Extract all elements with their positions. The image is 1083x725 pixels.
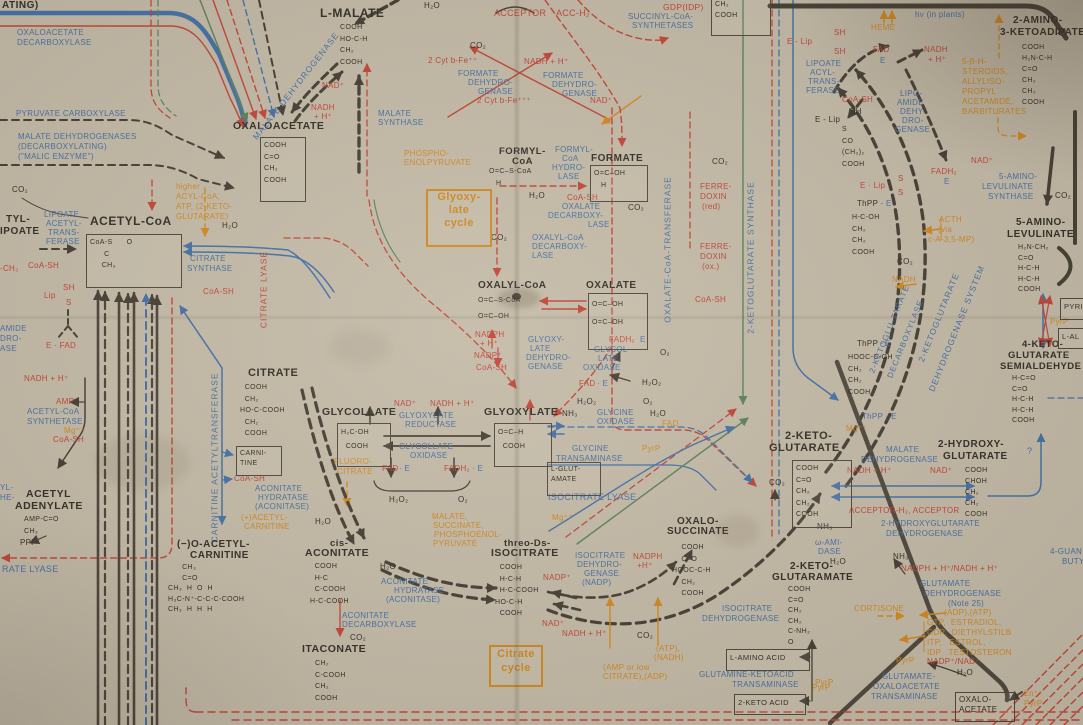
- enzyme-label: HE-: [0, 494, 15, 502]
- cofactor-label: + H⁺: [928, 56, 946, 64]
- chart-label: NH₃: [893, 553, 909, 561]
- enzyme-label: OXALATE-CoA-TRANSFERASE: [664, 171, 673, 327]
- enzyme-label: ASE: [0, 345, 17, 353]
- cofactor-label: CoA-SH: [203, 288, 234, 296]
- molecule-structure: COOH H-C-H H-C-COOH HO-C-H COOH: [495, 562, 565, 620]
- metabolite-title: ACETYL-CoA: [90, 215, 172, 228]
- molecule-box: COOH C=O CH₂ CH₂ COOH: [792, 460, 852, 528]
- metabolite-title: GLUTARATE: [943, 452, 1008, 463]
- cycle-label-box: Glyoxy- late cycle: [426, 189, 492, 247]
- enzyme-label: SYNTHASE: [187, 265, 233, 273]
- cofactor-label: S: [66, 299, 72, 307]
- regulator-label: ALLYLISO-: [962, 78, 1005, 86]
- cofactor-label: NADH + H⁺: [524, 58, 569, 66]
- enzyme-label: REDUCTASE: [405, 421, 456, 429]
- enzyme-label: DEHYDROGENASE: [924, 590, 1001, 598]
- regulator-label: c-A-3,5-MP): [928, 236, 974, 244]
- metabolite-title: ATING): [2, 1, 39, 12]
- chart-label: ThPP ·: [857, 340, 884, 348]
- regulator-label: PyrP: [896, 657, 915, 665]
- enzyme-label: hν (in plants): [915, 11, 965, 19]
- regulator-label: PyrP: [642, 445, 661, 453]
- enzyme-label: DRO-: [0, 335, 22, 343]
- regulator-label: CARNITINE: [244, 523, 290, 531]
- cofactor-label: E · FAD: [46, 342, 76, 350]
- enzyme-label: OXIDASE: [410, 452, 448, 460]
- regulator-label: ENOLPYRUVATE: [404, 159, 471, 167]
- enzyme-label: GLYCINE: [572, 445, 609, 453]
- chart-label: H₂O₂: [577, 398, 596, 406]
- enzyme-label: PYRUVATE CARBOXYLASE: [16, 110, 126, 118]
- chart-label: ThPP ·: [857, 200, 884, 208]
- cofactor-label: NADH + H⁺: [430, 400, 475, 408]
- enzyme-label: SYNTHASE: [378, 119, 424, 127]
- enzyme-label: 2-KETOGLUTARATE SYNTHASE: [747, 172, 756, 342]
- enzyme-label: YL-: [0, 484, 13, 492]
- cofactor-label: SH: [834, 29, 846, 37]
- cofactor-label: + H⁺: [480, 340, 498, 348]
- molecule-structure: COOH C=O CH₂ CH₂ C-NH₂ O: [788, 585, 844, 653]
- enzyme-label: LASE: [588, 221, 610, 229]
- enzyme-label: E: [886, 200, 892, 208]
- metabolite-title: 2-KETO-: [790, 562, 833, 573]
- molecule-structure: COOH HO-C-H CH₂ COOH: [340, 22, 395, 74]
- cofactor-label: Lip: [44, 292, 56, 300]
- regulator-label: PYRUVATE: [433, 540, 477, 548]
- cofactor-label: E - Lip: [787, 38, 812, 46]
- cofactor-label: DOXIN: [700, 253, 727, 261]
- enzyme-label: GENASE: [895, 126, 930, 134]
- molecule-structure: AMP-C=O CH₃: [24, 514, 84, 540]
- cofactor-label: ACCEPTOR: [494, 9, 546, 18]
- enzyme-label: ACETYL-CoA: [27, 408, 79, 416]
- chart-label: CO₂: [350, 634, 366, 642]
- enzyme-label: DEHYDROGENASE: [861, 456, 938, 464]
- enzyme-label: OXIDASE: [583, 364, 621, 372]
- molecule-structure: CH₂ C-COOH CH₂ COOH: [315, 658, 375, 706]
- enzyme-label: (ACONITASE): [255, 503, 309, 511]
- chart-label: CO₂: [1055, 192, 1071, 200]
- chart-label: O₂: [660, 349, 670, 357]
- regulator-label: ITP, ESTROL,: [927, 639, 986, 647]
- molecule-box: CARNI- TINE: [236, 446, 282, 476]
- cofactor-label: E · Lip: [860, 182, 885, 190]
- regulator-label: Mg⁺⁺: [552, 514, 573, 522]
- regulator-label: PyrP: [1024, 700, 1043, 708]
- cofactor-label: NAD⁺: [930, 467, 952, 475]
- regulator-label: FAD: [662, 420, 678, 428]
- cofactor-label: NAD⁺: [542, 620, 564, 628]
- cofactor-label: NADP⁺: [474, 352, 502, 360]
- cofactor-label: CITRATE LYASE: [260, 249, 269, 329]
- molecule-structure: S CO (CH₂)₂ COOH: [842, 124, 890, 170]
- regulator-label: Zn⁺⁺: [1024, 690, 1043, 698]
- cofactor-label: (ox.): [702, 263, 720, 271]
- molecule-structure: COOH C=O HOOC-C-H CH₂ COOH: [672, 542, 738, 600]
- regulator-label: ATP, (2-KETO-: [176, 203, 232, 211]
- cofactor-label: NADH: [924, 46, 948, 54]
- chart-label: SH: [850, 108, 862, 116]
- enzyme-label: OXIDASE: [597, 418, 635, 426]
- metabolite-title: ACONITATE: [305, 548, 369, 559]
- metabolite-title: L-MALATE: [320, 7, 384, 20]
- cofactor-label: CoA-SH: [695, 296, 726, 304]
- enzyme-label: ("MALIC ENZYME"): [18, 153, 94, 161]
- enzyme-label: TRANSAMINASE: [732, 681, 799, 689]
- enzyme-label: GLUTAMINE-KETOACID: [699, 671, 794, 679]
- enzyme-label: FERASE: [806, 87, 840, 95]
- enzyme-label: SYNTHETASES: [632, 22, 693, 30]
- molecule-box: OXALO- ACETATE: [955, 692, 1015, 722]
- chart-label: H₂O: [957, 669, 973, 677]
- chart-label: H₂O: [315, 518, 331, 526]
- chart-label: O₂: [643, 398, 653, 406]
- metabolite-title: OXALOACETATE: [233, 121, 324, 132]
- molecule-structure: COOH CH₂ HO-C-COOH CH₂ COOH: [240, 382, 310, 442]
- metabolite-title: OXALYL-CoA: [478, 281, 547, 292]
- cofactor-label: CoA-SH: [53, 436, 84, 444]
- cofactor-label: (red): [702, 203, 720, 211]
- cofactor-label: NAD⁺: [590, 97, 612, 105]
- regulator-label: GTP, ESTRADIOL,: [927, 619, 1001, 627]
- cofactor-label: CoA-SH: [28, 262, 59, 270]
- cofactor-label: NAD⁺: [394, 400, 416, 408]
- regulator-label: PROPYL: [962, 88, 996, 96]
- enzyme-label: DASE: [818, 548, 841, 556]
- regulator-label: ACTH: [939, 216, 962, 224]
- regulator-label: CITRATE: [337, 468, 373, 476]
- cofactor-label: FAD: [873, 46, 889, 54]
- cofactor-label: AMP: [56, 398, 74, 406]
- chart-label: H₂O₂: [642, 379, 661, 387]
- metabolite-title: 2-HYDROXY-: [938, 440, 1004, 451]
- cofactor-label: NADPH + H⁺/NADH + H⁺: [901, 565, 998, 573]
- metabolite-title: ADENYLATE: [15, 501, 83, 512]
- chart-label: CO₂: [712, 158, 728, 166]
- molecule-structure: O=C–S-CoA H: [489, 166, 547, 196]
- chart-label: H₂O: [650, 410, 666, 418]
- enzyme-label: DECARBOXYLASE: [342, 621, 417, 629]
- metabolite-title: (−)O-ACETYL-: [177, 540, 250, 551]
- metabolite-title: CITRATE: [248, 368, 298, 380]
- metabolite-title: LEVULINATE: [1007, 230, 1074, 241]
- enzyme-label: ISOCITRATE: [722, 605, 772, 613]
- cofactor-label: NADH + H⁺: [24, 375, 69, 383]
- cofactor-label: NAD⁺: [971, 157, 993, 165]
- metabolite-title: OXALATE: [586, 281, 637, 292]
- chart-label: H₂O: [424, 2, 440, 10]
- metabolite-title: 2-KETO-: [785, 431, 832, 443]
- enzyme-label: SYNTHASE: [988, 193, 1034, 201]
- chart-label: H₂O: [222, 222, 238, 230]
- enzyme-label: MALATE: [886, 446, 919, 454]
- enzyme-label: MALATE DEHYDROGENASES: [18, 133, 137, 141]
- metabolite-title: ACETYL: [26, 489, 71, 500]
- chart-label: NH₃: [562, 410, 578, 418]
- enzyme-label: LEVULINATE: [982, 183, 1033, 191]
- regulator-label: CORTISONE: [854, 605, 904, 613]
- cofactor-label: ACC-H₂: [556, 9, 590, 18]
- molecule-structure: COOH H₂N-C-H C=O CH₂ CH₂ COOH: [1022, 42, 1082, 114]
- molecule-structure: H₂N-CH₂ C=O H-C-H H-C-H COOH: [1018, 243, 1078, 303]
- cofactor-label: FERRE-: [700, 243, 732, 251]
- enzyme-label: CARNITINE ACETYLTRANSFERASE: [211, 362, 220, 552]
- enzyme-label: OXALOACETATE: [873, 683, 940, 691]
- molecule-box: H₂C-OH COOH: [337, 423, 391, 467]
- cofactor-label: S: [898, 175, 904, 183]
- cofactor-label: 2 Cyt b-Fe⁺⁺: [428, 57, 477, 65]
- cofactor-label: NAD⁺: [322, 82, 344, 90]
- cofactor-label: NADH + H⁺: [562, 630, 607, 638]
- cofactor-label: FERRE-: [700, 183, 732, 191]
- chart-label: CO₂: [12, 186, 28, 194]
- regulator-label: 5-β-H-: [962, 58, 987, 66]
- metabolite-title: ISOCITRATE: [491, 548, 559, 559]
- cofactor-label: NADH + H⁺: [847, 467, 892, 475]
- enzyme-label: (NADP): [582, 579, 611, 587]
- regulator-label: (via: [938, 226, 952, 234]
- cofactor-label: GDP(IDP): [663, 3, 704, 12]
- enzyme-label: E: [944, 178, 950, 186]
- molecule-structure: H-C-OH CH₂ CH₂ COOH: [852, 212, 902, 260]
- regulator-label: higher: [176, 183, 200, 191]
- enzyme-label: BUTY: [1062, 558, 1083, 566]
- enzyme-label: E: [880, 57, 886, 65]
- regulator-label: (NADH): [654, 654, 684, 662]
- cofactor-label: S: [898, 189, 904, 197]
- metabolite-title: GLYOXYLATE: [484, 407, 558, 418]
- chart-label: O₂: [458, 496, 468, 504]
- regulator-label: GLUTARATE): [176, 213, 228, 221]
- molecule-box: L-GLUT- AMATE: [547, 462, 601, 496]
- cofactor-label: 2 Cyt b-Fe⁺⁺⁺: [477, 97, 531, 105]
- molecule-structure: COOH CHOH CH₂ CH₂ COOH: [965, 465, 1015, 523]
- molecule-box: L-AL: [1058, 328, 1083, 349]
- enzyme-label: RATE LYASE: [2, 565, 59, 574]
- enzyme-label: FERASE: [46, 238, 80, 246]
- enzyme-label: 4-GUAN: [1050, 548, 1082, 556]
- cofactor-label: DOXIN: [700, 193, 727, 201]
- molecule-structure: COOH H-C C-COOH H-C-COOH: [310, 561, 380, 609]
- enzyme-label: GLUTAMATE-: [882, 673, 935, 681]
- enzyme-label: · E: [399, 465, 410, 473]
- molecule-box: O=C–OH H: [590, 165, 648, 202]
- molecule-box: CoA-S O C CH₃: [86, 234, 182, 288]
- enzyme-label: GENASE: [528, 363, 563, 371]
- molecule-box: O=C–H COOH: [494, 423, 552, 467]
- enzyme-label: TRANSAMINASE: [871, 693, 938, 701]
- molecule-structure: HOOC-C-OH CH₂ CH₂ COOH: [848, 352, 910, 400]
- metabolite-title: SUCCINATE: [667, 527, 729, 538]
- molecule-box: CH₂ CH₂ COOH: [711, 0, 771, 36]
- cofactor-label: +H⁺: [637, 562, 653, 570]
- enzyme-label: DEHYDROGENASE: [702, 615, 779, 623]
- metabolite-title: GLUTARATE: [1008, 351, 1070, 361]
- chart-label: PPi: [20, 539, 33, 547]
- enzyme-label: CITRATE: [190, 255, 226, 263]
- molecule-structure: CH₃ C=O CH₃ H O H H₃C-N⁺-C-C-C-COOH CH₃ …: [168, 563, 292, 619]
- chart-label: CO₂: [628, 204, 644, 212]
- cofactor-label: FAD: [579, 380, 595, 388]
- metabolite-title: TYL-: [6, 215, 30, 226]
- enzyme-label: DECARBOXYLASE: [17, 39, 92, 47]
- enzyme-label: · E: [472, 465, 483, 473]
- cofactor-label: CoA-SH: [234, 475, 265, 483]
- metabolite-title: FORMATE: [591, 154, 643, 165]
- cofactor-label: -CH₃: [0, 265, 19, 273]
- enzyme-label: E: [885, 340, 891, 348]
- cycle-label-box: Citrate cycle: [489, 645, 543, 687]
- regulator-label: BARBITURATES: [962, 108, 1026, 116]
- cofactor-label: + H⁺: [314, 113, 332, 121]
- metabolite-title: 2-AMINO-: [1013, 16, 1063, 27]
- cofactor-label: SH: [63, 284, 75, 292]
- regulator-label: (ADP),(ATP): [944, 609, 992, 617]
- molecule-structure: H-C=O C=O H-C-H H-C-H COOH: [1012, 374, 1072, 432]
- regulator-label: ACYL-CoA,: [176, 193, 220, 201]
- chart-label: CO₂: [491, 234, 507, 242]
- enzyme-label: LASE: [558, 173, 580, 181]
- enzyme-label: AMIDE: [0, 325, 27, 333]
- enzyme-label: ThPP · E: [862, 413, 897, 421]
- enzyme-label: 5-AMINO-: [999, 173, 1037, 181]
- chart-label: E - Lip: [815, 116, 840, 124]
- molecule-structure: O=C–S-CoA O=C–OH: [478, 293, 540, 337]
- cofactor-label: SH: [834, 48, 846, 56]
- enzyme-label: DEHYDROGENASE: [886, 530, 963, 538]
- cofactor-label: NADP⁺/NAD⁺: [927, 658, 980, 666]
- chart-label: CO₂: [769, 479, 785, 487]
- enzyme-label: ?: [1027, 447, 1032, 456]
- enzyme-label: OXALOACETATE: [17, 29, 84, 37]
- regulator-label: Mg⁺⁺: [846, 425, 867, 433]
- enzyme-label: GLUTAMATE: [920, 580, 970, 588]
- chart-label: H₂O₂: [389, 496, 408, 504]
- metabolite-title: CARNITINE: [190, 551, 249, 562]
- cofactor-label: FADH₂: [931, 168, 957, 176]
- regulator-label: GDP, DIETHYLSTILB: [927, 629, 1011, 637]
- metabolite-title: 3-KETOADIPATE: [1000, 28, 1083, 39]
- regulator-label: ACETAMIDE,: [962, 98, 1013, 106]
- cofactor-label: CoA-SH: [476, 364, 507, 372]
- metabolite-title: 5-AMINO-: [1016, 218, 1066, 229]
- enzyme-label: (ACONITASE): [386, 596, 440, 604]
- metabolite-title: SEMIALDEHYDE: [1000, 362, 1081, 372]
- metabolite-title: GLUTARAMATE: [772, 573, 853, 584]
- cofactor-label: FADH₂: [444, 465, 470, 473]
- molecule-box: 2-KETO ACID: [734, 694, 806, 715]
- metabolite-title: GLUTARATE: [769, 443, 840, 455]
- cofactor-label: ACCEPTOR-H₂, ACCEPTOR: [849, 507, 959, 515]
- enzyme-label: · E: [597, 380, 608, 388]
- regulator-label: PyrP: [812, 684, 831, 692]
- pathway-chart: ATING)OXALOACETATEDECARBOXYLASEPYRUVATE …: [0, 0, 1083, 725]
- metabolite-title: IPOATE: [0, 227, 39, 238]
- metabolite-title: ITACONATE: [302, 644, 366, 655]
- molecule-box: L-AMINO ACID: [726, 649, 810, 671]
- chart-label: CO₂: [637, 632, 653, 640]
- chart-label: H₂O: [380, 563, 396, 571]
- enzyme-label: LASE: [532, 252, 554, 260]
- metabolite-title: GLYCOLLATE: [322, 407, 396, 418]
- enzyme-label: (DECARBOXYLATING): [18, 143, 107, 151]
- regulator-label: CITRATE),(ADP): [603, 673, 668, 681]
- molecule-box: O=C–OH O=C–OH: [588, 293, 648, 350]
- cofactor-label: CoA-SH: [842, 96, 873, 104]
- chart-label: CO₂: [470, 42, 486, 50]
- molecule-box: COOH C=O CH₂ COOH: [260, 137, 306, 202]
- regulator-label: STEROIDS,: [962, 68, 1008, 76]
- regulator-label: HEME: [871, 24, 895, 32]
